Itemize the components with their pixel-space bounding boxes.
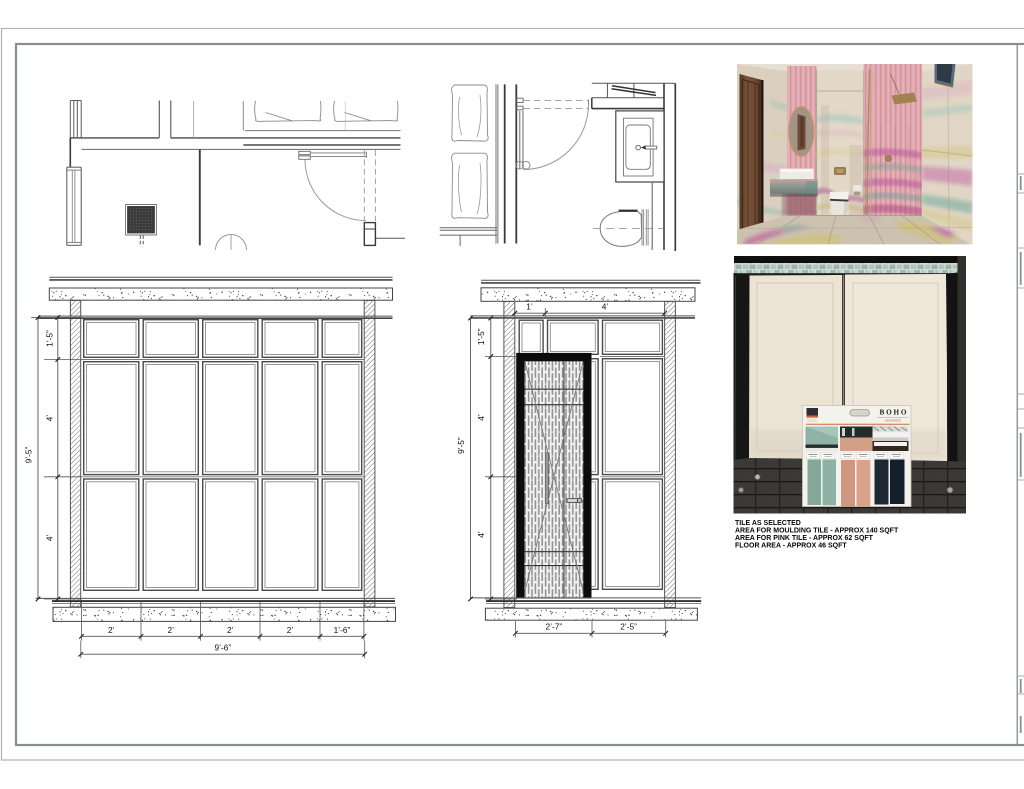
svg-text:2’: 2’	[227, 625, 234, 635]
svg-text:2’-7”: 2’-7”	[545, 622, 562, 632]
svg-text:4’: 4’	[602, 302, 609, 312]
svg-text:B O H O: B O H O	[880, 409, 907, 417]
svg-text:4’: 4’	[45, 415, 55, 422]
svg-text:1’-5”: 1’-5”	[45, 330, 55, 347]
svg-text:9’-5”: 9’-5”	[456, 437, 466, 454]
svg-text:2’: 2’	[287, 625, 294, 635]
svg-text:1’: 1’	[526, 302, 533, 312]
svg-text:4’: 4’	[476, 531, 486, 538]
svg-text:1’-6”: 1’-6”	[334, 625, 351, 635]
svg-text:AREA FOR PINK TILE - APPROX 62: AREA FOR PINK TILE - APPROX 62 SQFT	[735, 535, 874, 542]
svg-text:AREA FOR MOULDING TILE - APPRO: AREA FOR MOULDING TILE - APPROX 140 SQFT	[735, 528, 899, 535]
svg-text:1’-5”: 1’-5”	[476, 328, 486, 345]
svg-text:4’: 4’	[476, 414, 486, 421]
svg-text:2’: 2’	[168, 625, 175, 635]
svg-text:9’-5”: 9’-5”	[24, 446, 34, 463]
svg-text:2’-5”: 2’-5”	[620, 622, 637, 632]
svg-text:TILE AS SELECTED: TILE AS SELECTED	[735, 520, 801, 527]
svg-text:4’: 4’	[45, 535, 55, 542]
svg-text:ceramics: ceramics	[885, 418, 901, 423]
svg-text:FLOOR AREA - APPROX 46 SQFT: FLOOR AREA - APPROX 46 SQFT	[735, 543, 847, 550]
svg-text:9’-6”: 9’-6”	[214, 643, 231, 653]
svg-text:2’: 2’	[108, 625, 115, 635]
